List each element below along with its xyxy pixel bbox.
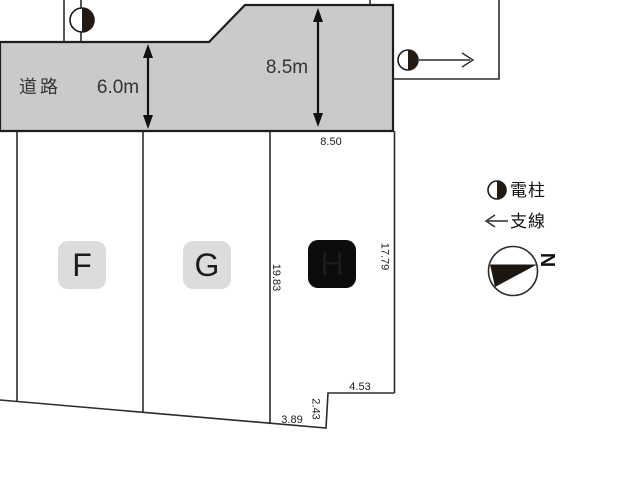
lot-badge-f: F [58, 241, 106, 289]
site-plan-drawing: 道路 6.0m 8.5m 8.50 19.83 17.79 4.53 2.43 … [0, 0, 640, 480]
dim-top: 8.50 [320, 136, 341, 148]
north-compass-icon: N [489, 247, 559, 296]
legend: 電柱 支線 N [486, 181, 558, 296]
lot-badge-h-label: H [320, 246, 343, 282]
utility-pole-icon [70, 8, 94, 32]
legend-wire-arrow-icon [486, 215, 508, 227]
dim-right: 17.79 [379, 243, 391, 271]
lot-badge-g-label: G [195, 247, 220, 283]
road-width-label: 6.0m [97, 77, 139, 98]
lot-boundary-south [0, 393, 395, 428]
lot-badge-f-label: F [72, 247, 92, 283]
dim-bottom: 3.89 [281, 414, 302, 426]
north-letter: N [536, 253, 558, 267]
lot-badge-h: H [308, 240, 356, 288]
legend-pole-label: 電柱 [510, 181, 546, 200]
road-depth-label: 8.5m [266, 57, 308, 78]
dim-step-top: 4.53 [349, 381, 370, 393]
dim-step-side: 2.43 [310, 398, 322, 419]
road-area [0, 5, 393, 131]
site-plan-page: 道路 6.0m 8.5m 8.50 19.83 17.79 4.53 2.43 … [0, 0, 640, 480]
road-label: 道路 [19, 77, 61, 97]
lot-badge-g: G [183, 241, 231, 289]
dim-left: 19.83 [270, 264, 282, 292]
legend-wire-label: 支線 [510, 212, 546, 231]
legend-pole-icon [488, 181, 506, 199]
utility-pole-icon [398, 50, 418, 70]
guy-wire-arrow-icon [419, 53, 473, 67]
